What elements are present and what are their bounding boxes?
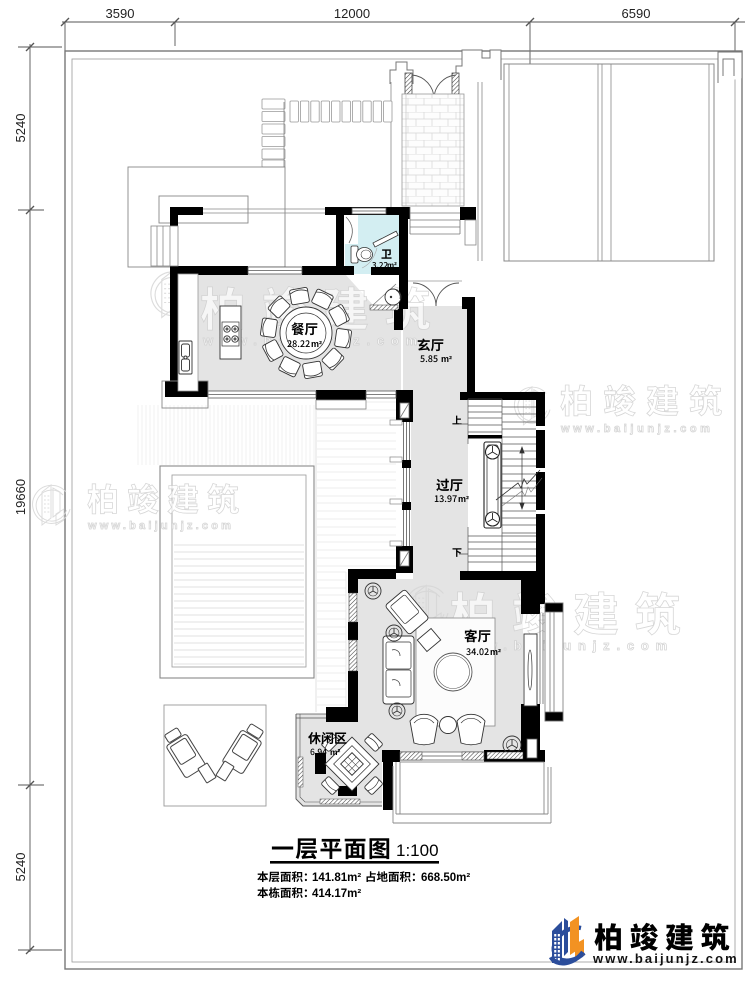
svg-text:m²: m² <box>387 261 397 270</box>
svg-text:1:100: 1:100 <box>396 841 439 860</box>
svg-text:m²: m² <box>441 354 452 364</box>
svg-text:6590: 6590 <box>622 6 651 21</box>
svg-text:141.81m²: 141.81m² <box>312 872 361 884</box>
svg-text:668.50m²: 668.50m² <box>421 872 470 884</box>
svg-text:www.baijunjz.com: www.baijunjz.com <box>87 520 234 532</box>
svg-text:12000: 12000 <box>334 6 370 21</box>
svg-text:m²: m² <box>330 747 341 757</box>
svg-text:m²: m² <box>490 647 501 657</box>
svg-text:5240: 5240 <box>13 114 28 143</box>
svg-text:www.baijunjz.com: www.baijunjz.com <box>560 423 714 435</box>
svg-text:5240: 5240 <box>13 853 28 882</box>
svg-text:19660: 19660 <box>13 479 28 515</box>
svg-text:m²: m² <box>458 494 469 504</box>
svg-text:414.17m²: 414.17m² <box>312 888 361 900</box>
svg-text:m²: m² <box>311 339 322 349</box>
svg-text:www.baijunjz.com: www.baijunjz.com <box>592 951 739 966</box>
svg-text:3590: 3590 <box>106 6 135 21</box>
